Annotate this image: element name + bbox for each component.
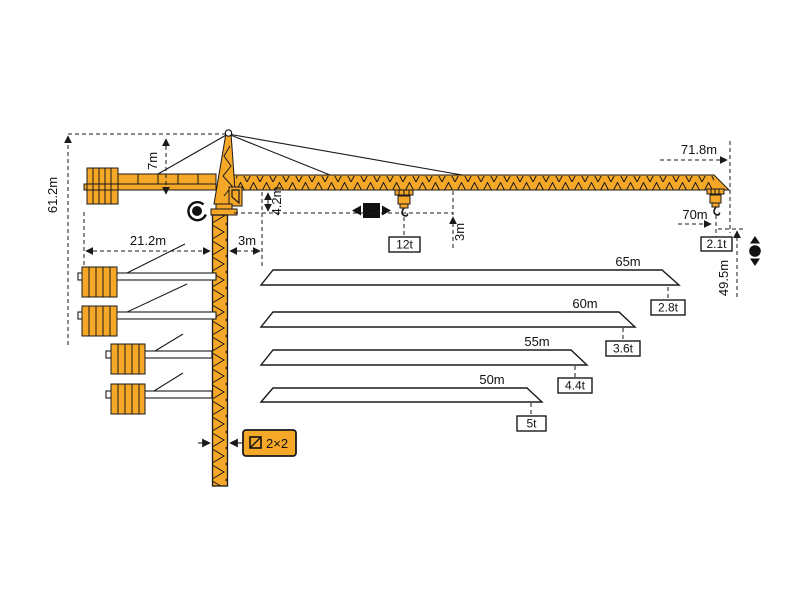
jib-variant-load: 2.8t <box>658 301 679 315</box>
counterjib-platform <box>118 174 216 184</box>
hook-height-label: 49.5m <box>716 260 731 296</box>
trolley-travel-icon <box>352 203 391 218</box>
jib-variant-50m: 50m 5t <box>261 372 546 431</box>
jib-variant-load: 5t <box>526 417 537 431</box>
counter-jib <box>84 168 216 204</box>
hook-icon <box>714 207 720 215</box>
tower-height-label: 61.2m <box>45 177 60 213</box>
jib-variant-55m: 55m 4.4t <box>261 334 592 393</box>
tie-rods <box>158 134 468 177</box>
max-load-label: 12t <box>396 238 413 252</box>
apex-height-label: 7m <box>145 152 160 170</box>
jib-variant-length: 65m <box>615 254 640 269</box>
counterweight-variant-3 <box>106 334 212 374</box>
trolley-hook-max <box>395 190 413 216</box>
dimension-max-load-radius: 3m <box>452 191 467 248</box>
max-load-callout: 12t <box>389 217 420 252</box>
slewing-icon <box>188 202 205 220</box>
operator-cab <box>229 187 242 206</box>
max-load-radius-label: 3m <box>452 223 467 241</box>
tower-section-label: 2×2 <box>266 436 288 451</box>
jib-variant-length: 50m <box>479 372 504 387</box>
counterjib-radius-label: 21.2m <box>130 233 166 248</box>
tip-load-label: 2.1t <box>706 237 727 251</box>
counterweight-variant-4 <box>106 373 212 414</box>
crane-diagram-canvas: 61.2m 7m 21.2m 3m 4.2m 3m 12t 71.8m <box>0 0 800 600</box>
jib-variant-load: 3.6t <box>613 342 634 356</box>
dimension-jib-depth: 4.2m <box>234 187 453 216</box>
max-hook-radius-label: 70m <box>682 207 707 222</box>
counterweight-variant-1 <box>78 244 216 297</box>
hoisting-icon <box>749 236 761 266</box>
jib-variant-60m: 60m 3.6t <box>261 296 640 356</box>
dimension-max-hook-radius: 70m <box>678 207 711 224</box>
jib-variant-length: 55m <box>524 334 549 349</box>
trolley-hook-tip <box>707 189 724 215</box>
counterweight-block <box>87 168 118 204</box>
jib-depth-label: 4.2m <box>269 187 284 216</box>
min-radius-label: 3m <box>238 233 256 248</box>
jib-variant-65m: 65m 2.8t <box>261 254 685 315</box>
tip-radius-label: 71.8m <box>681 142 717 157</box>
main-jib <box>234 175 729 190</box>
tower-mast <box>213 215 228 486</box>
tower-crane-diagram: 61.2m 7m 21.2m 3m 4.2m 3m 12t 71.8m <box>0 0 800 600</box>
dimension-counterjib-radius: 21.2m <box>84 212 210 268</box>
jib-variant-length: 60m <box>572 296 597 311</box>
hook-icon <box>402 208 408 216</box>
apex-pin <box>225 130 231 136</box>
jib-variant-load: 4.4t <box>565 379 586 393</box>
